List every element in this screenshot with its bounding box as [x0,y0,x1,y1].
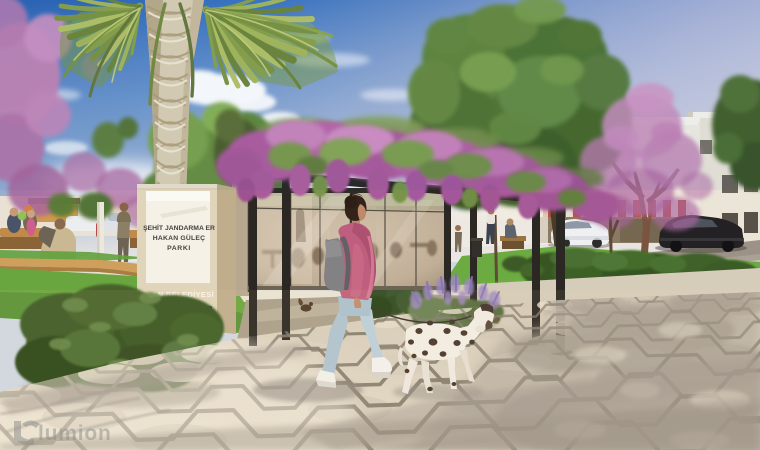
svg-text:lumion: lumion [38,422,112,445]
svg-text:HAKAN GÜLEÇ: HAKAN GÜLEÇ [153,233,205,242]
svg-text:PARKI: PARKI [167,245,191,252]
svg-text:ŞEHİT JANDARMA ER: ŞEHİT JANDARMA ER [143,224,215,232]
